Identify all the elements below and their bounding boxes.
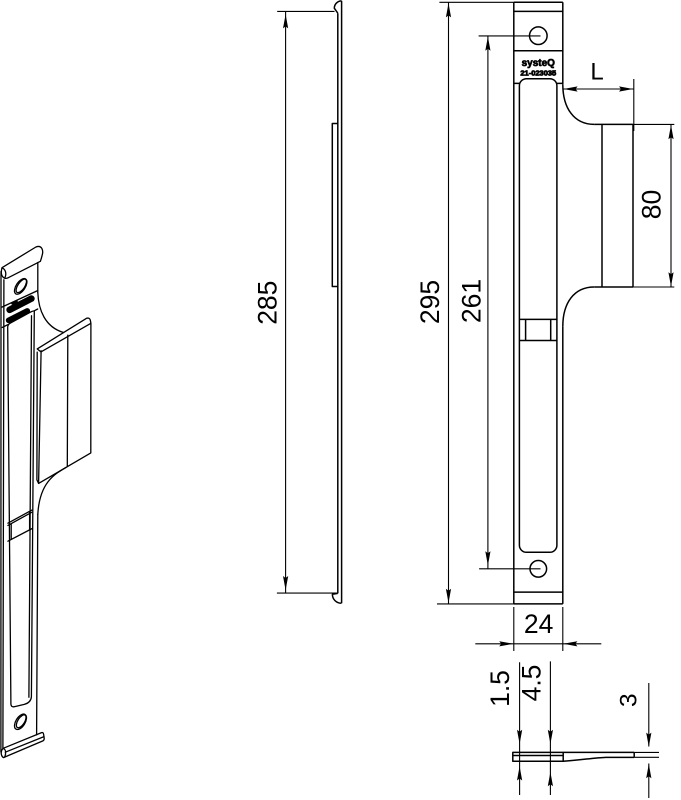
svg-text:285: 285 [253,281,283,325]
svg-text:21-023035: 21-023035 [520,69,556,78]
svg-text:L: L [590,58,603,85]
svg-text:80: 80 [637,190,667,219]
svg-text:systeQ: systeQ [522,58,556,69]
svg-text:261: 261 [456,279,486,323]
svg-text:295: 295 [415,280,445,324]
svg-text:1.5: 1.5 [485,670,515,707]
svg-text:3: 3 [615,693,642,707]
svg-text:24: 24 [524,609,553,639]
svg-text:4.5: 4.5 [517,665,547,702]
